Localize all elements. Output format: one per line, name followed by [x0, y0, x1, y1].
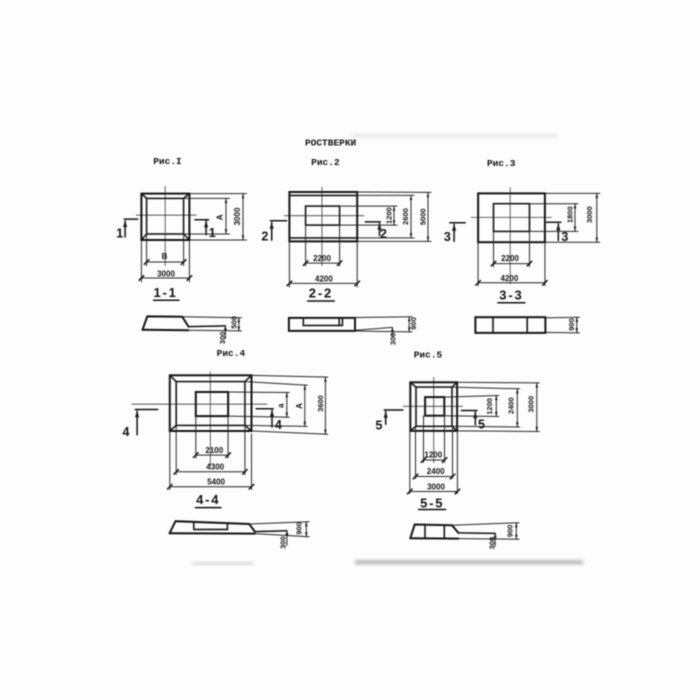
svg-text:1200: 1200 — [385, 207, 394, 224]
svg-text:900: 900 — [409, 317, 418, 330]
svg-text:1800: 1800 — [565, 206, 574, 223]
svg-text:А: А — [295, 403, 304, 409]
svg-text:2200: 2200 — [313, 254, 331, 263]
svg-text:300: 300 — [218, 332, 227, 345]
svg-text:3-3: 3-3 — [499, 288, 523, 303]
svg-text:4-4: 4-4 — [196, 492, 220, 507]
svg-text:3000: 3000 — [233, 207, 242, 225]
svg-text:3000: 3000 — [157, 269, 175, 278]
svg-text:4: 4 — [123, 425, 130, 439]
svg-text:1: 1 — [209, 226, 216, 240]
svg-text:1200: 1200 — [424, 451, 442, 460]
svg-text:3600: 3600 — [316, 395, 325, 412]
svg-text:2100: 2100 — [205, 446, 223, 455]
svg-text:900: 900 — [567, 318, 576, 331]
svg-text:3000: 3000 — [527, 396, 536, 413]
svg-text:300: 300 — [279, 536, 288, 549]
svg-text:500: 500 — [230, 316, 239, 329]
svg-text:а: а — [277, 403, 286, 408]
svg-text:Рис.3: Рис.3 — [487, 158, 516, 169]
svg-text:2: 2 — [261, 230, 268, 244]
svg-text:2400: 2400 — [427, 467, 445, 476]
svg-text:4200: 4200 — [315, 274, 333, 283]
svg-text:5: 5 — [478, 418, 485, 432]
svg-text:В: В — [162, 252, 168, 261]
svg-text:A: A — [216, 214, 225, 220]
svg-text:РОСТВЕРКИ: РОСТВЕРКИ — [305, 138, 357, 149]
svg-text:5000: 5000 — [418, 208, 427, 225]
svg-text:1-1: 1-1 — [153, 285, 177, 300]
svg-text:Рис.5: Рис.5 — [414, 349, 443, 360]
svg-text:5400: 5400 — [207, 477, 225, 486]
svg-text:2: 2 — [380, 227, 387, 241]
svg-text:Рис.2: Рис.2 — [311, 157, 340, 168]
svg-text:5-5: 5-5 — [420, 495, 444, 510]
svg-text:900: 900 — [505, 525, 514, 538]
svg-text:Рис.I: Рис.I — [153, 156, 182, 167]
svg-text:1: 1 — [116, 227, 123, 241]
svg-text:3000: 3000 — [427, 482, 445, 491]
svg-text:4: 4 — [275, 418, 282, 432]
svg-text:2-2: 2-2 — [309, 285, 333, 300]
svg-text:5: 5 — [376, 419, 383, 433]
svg-text:4300: 4300 — [206, 462, 224, 471]
svg-text:300: 300 — [388, 333, 397, 346]
svg-text:1200: 1200 — [485, 398, 494, 415]
svg-text:900: 900 — [295, 522, 304, 535]
svg-text:4200: 4200 — [501, 274, 519, 283]
svg-text:2600: 2600 — [401, 208, 410, 225]
svg-text:2400: 2400 — [507, 397, 516, 414]
svg-text:3: 3 — [444, 230, 451, 244]
svg-text:Рис.4: Рис.4 — [217, 348, 246, 359]
svg-text:3000: 3000 — [585, 206, 594, 223]
svg-text:2200: 2200 — [501, 254, 519, 263]
